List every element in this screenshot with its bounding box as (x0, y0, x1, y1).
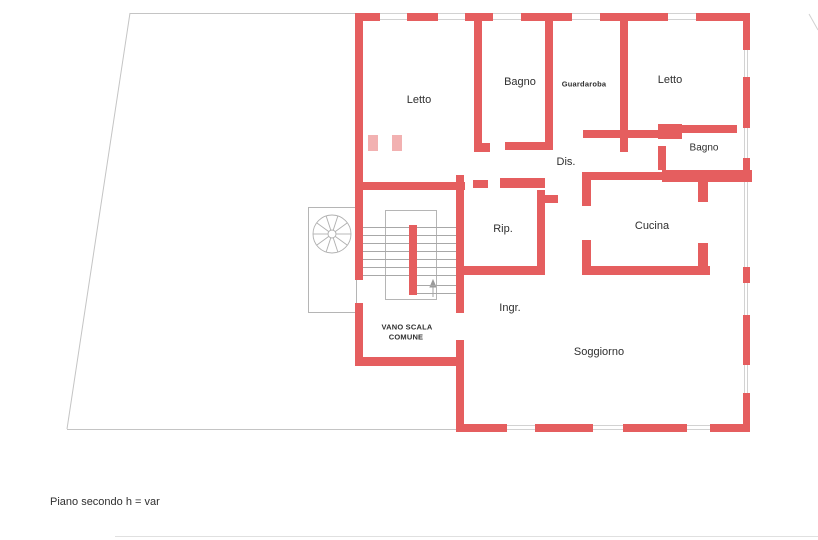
room-label-ingresso: Ingr. (499, 302, 520, 314)
room-label-letto-1: Letto (407, 94, 431, 106)
room-label-bagno-2: Bagno (690, 143, 719, 154)
spiral-stair-enclosure (308, 207, 357, 313)
lot-boundary-left-diagonal (67, 13, 130, 429)
stairwell-label-line1: VANO SCALA (381, 323, 432, 332)
room-label-guardaroba: Guardaroba (562, 80, 607, 89)
room-label-ripostiglio: Rip. (493, 223, 513, 235)
room-label-letto-2: Letto (658, 74, 682, 86)
door-jamb-mark (392, 135, 402, 151)
floor-plan-canvas: Letto Bagno Guardaroba Letto Bagno Dis. … (0, 0, 818, 540)
room-label-bagno-1: Bagno (504, 76, 536, 88)
door-jamb-mark (368, 135, 378, 151)
stairwell-label-line2: COMUNE (389, 333, 424, 342)
room-label-cucina: Cucina (635, 220, 669, 232)
lot-boundary-right-tick (809, 14, 818, 30)
room-label-disimpegno: Dis. (557, 156, 576, 168)
room-label-soggiorno: Soggiorno (574, 346, 624, 358)
plan-caption: Piano secondo h = var (50, 496, 160, 508)
